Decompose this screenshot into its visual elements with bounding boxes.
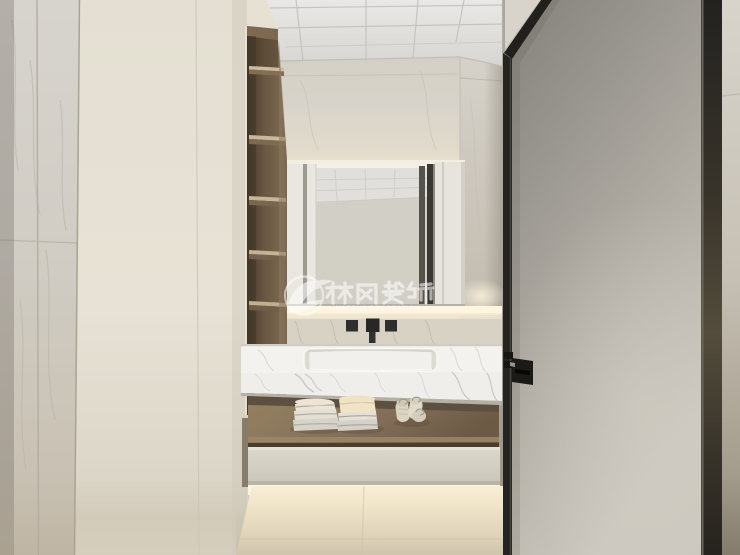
svg-text:LIN&FENG DECORATION: LIN&FENG DECORATION [329,305,420,312]
